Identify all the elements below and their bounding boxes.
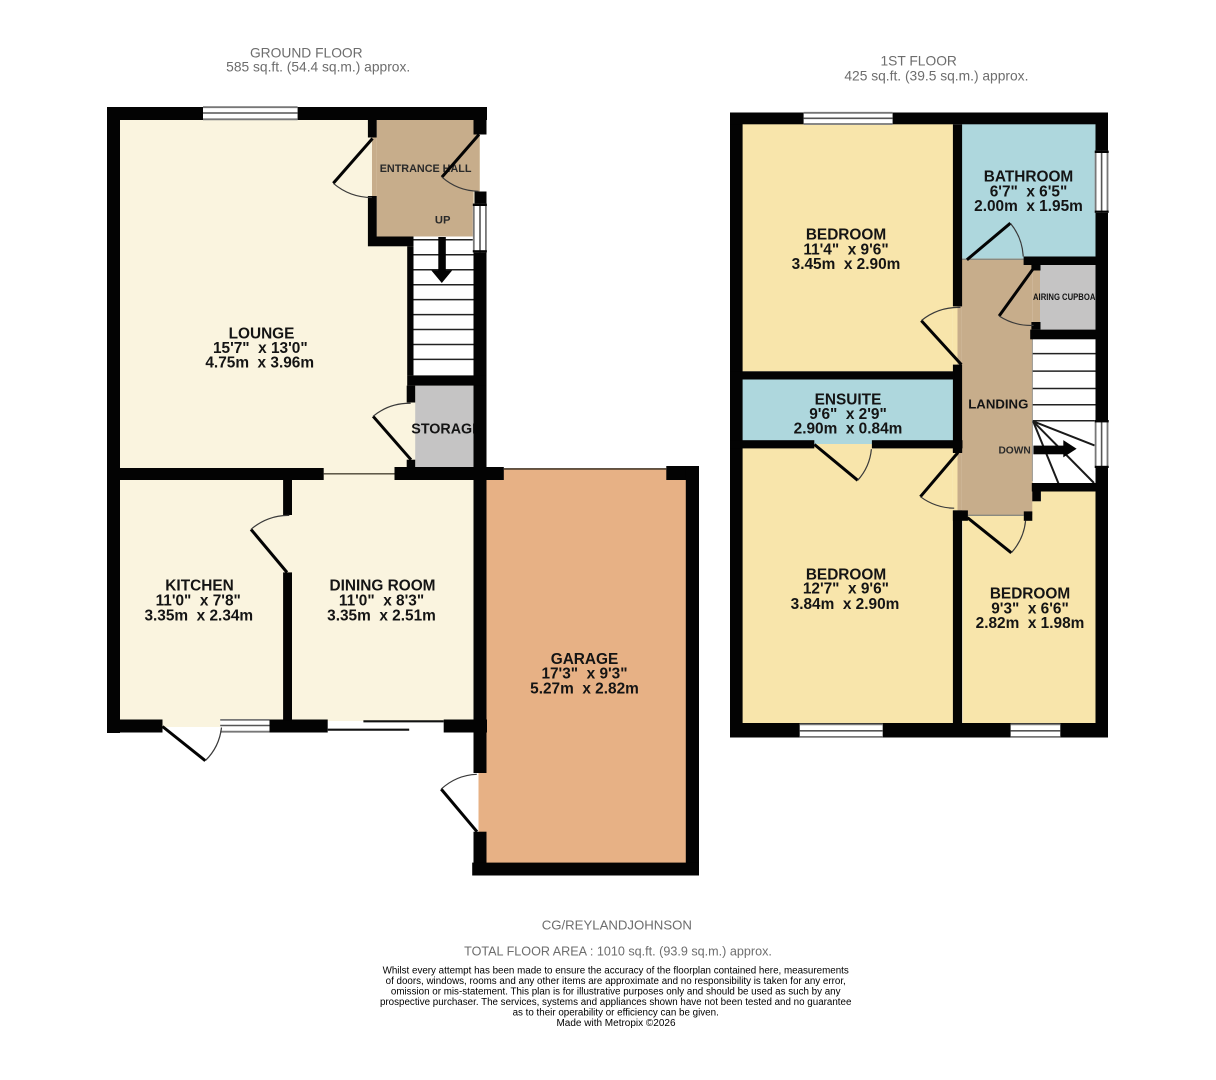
svg-text:3.35m x 2.51m: 3.35m x 2.51m (327, 608, 436, 625)
svg-text:5.27m x 2.82m: 5.27m x 2.82m (530, 681, 639, 698)
svg-text:prospective purchaser. The ser: prospective purchaser. The services, sys… (380, 997, 852, 1008)
svg-text:of doors, windows, rooms and a: of doors, windows, rooms and any other i… (386, 976, 846, 987)
svg-text:3.45m x 2.90m: 3.45m x 2.90m (792, 256, 901, 273)
svg-text:as to their operability or eff: as to their operability or efficiency ca… (513, 1007, 719, 1018)
svg-text:3.84m x 2.90m: 3.84m x 2.90m (791, 596, 900, 613)
svg-text:4.75m x 3.96m: 4.75m x 3.96m (205, 355, 314, 372)
svg-text:585 sq.ft. (54.4 sq.m.) approx: 585 sq.ft. (54.4 sq.m.) approx. (226, 59, 410, 74)
svg-text:omission or mis-statement. Thi: omission or mis-statement. This plan is … (391, 986, 841, 997)
svg-text:2.82m x 1.98m: 2.82m x 1.98m (976, 615, 1085, 632)
svg-text:425 sq.ft. (39.5 sq.m.) approx: 425 sq.ft. (39.5 sq.m.) approx. (844, 69, 1028, 84)
svg-text:3.35m x 2.34m: 3.35m x 2.34m (144, 608, 253, 625)
svg-text:2.00m x 1.95m: 2.00m x 1.95m (974, 198, 1083, 215)
svg-text:CG/REYLANDJOHNSON: CG/REYLANDJOHNSON (542, 918, 692, 933)
svg-text:STORAGE: STORAGE (411, 421, 481, 437)
svg-text:TOTAL FLOOR AREA : 1010 sq.ft.: TOTAL FLOOR AREA : 1010 sq.ft. (93.9 sq.… (464, 945, 772, 959)
svg-text:UP: UP (435, 215, 451, 227)
svg-text:1ST FLOOR: 1ST FLOOR (880, 54, 956, 69)
svg-text:LANDING: LANDING (968, 397, 1028, 412)
svg-text:Made with Metropix ©2026: Made with Metropix ©2026 (556, 1018, 676, 1029)
svg-text:AIRING CUPBOARD: AIRING CUPBOARD (1033, 292, 1107, 302)
svg-text:2.90m x 0.84m: 2.90m x 0.84m (794, 421, 903, 438)
svg-text:Whilst every attempt has been: Whilst every attempt has been made to en… (383, 965, 849, 976)
svg-text:ENTRANCE HALL: ENTRANCE HALL (380, 163, 472, 175)
svg-text:DOWN: DOWN (998, 446, 1030, 457)
svg-text:12'7" x 9'6": 12'7" x 9'6" (803, 581, 889, 598)
